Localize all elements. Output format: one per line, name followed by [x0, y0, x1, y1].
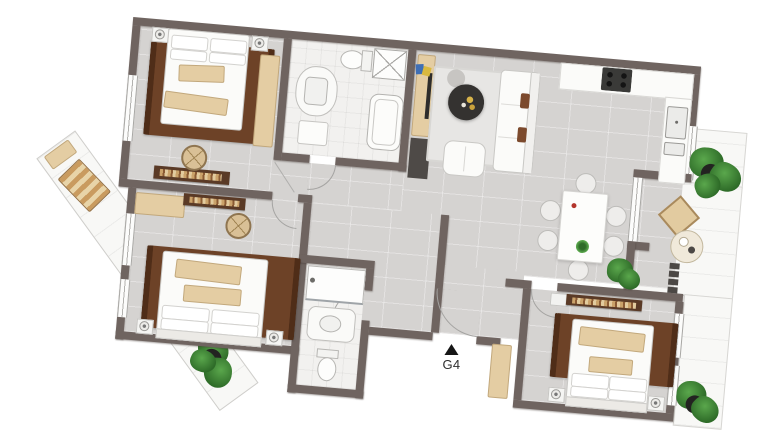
unit-label: G4: [430, 357, 472, 372]
step: [669, 271, 679, 278]
floor-plan-canvas: G4: [0, 0, 770, 430]
armchair-seam: [463, 146, 466, 171]
sink-icon: [303, 76, 328, 106]
shower-tray: [297, 120, 329, 147]
bathtub: [366, 93, 405, 152]
sofa-pillow: [517, 127, 527, 143]
bathtub-inner: [371, 98, 399, 146]
sofa-pillow: [520, 93, 530, 109]
step: [669, 263, 679, 270]
desk-return: [134, 192, 186, 218]
toilet-tank: [360, 50, 373, 72]
faucet-icon: [675, 121, 678, 124]
bed-throw: [178, 64, 225, 83]
armchair: [442, 140, 487, 179]
dining-table: [557, 190, 609, 264]
shower-icon: [372, 48, 407, 81]
step: [667, 287, 677, 294]
sun-lounger: [58, 159, 112, 213]
sink-icon: [665, 106, 689, 140]
table-decor: [688, 246, 696, 254]
entrance-marker-group: G4: [428, 344, 474, 378]
table-centerpiece-plant: [575, 239, 589, 253]
shower-enclosure: [305, 265, 366, 305]
table-decor-red: [571, 203, 576, 208]
ac-unit-steps: [667, 263, 684, 296]
stove-icon: [601, 67, 633, 93]
step: [668, 279, 678, 286]
table-decor: [678, 236, 689, 247]
apartment-plan: G4: [23, 10, 753, 430]
kitchen-drawer: [663, 142, 685, 157]
entrance-triangle-icon: [444, 344, 458, 355]
entrance-door-leaf: [487, 344, 512, 400]
